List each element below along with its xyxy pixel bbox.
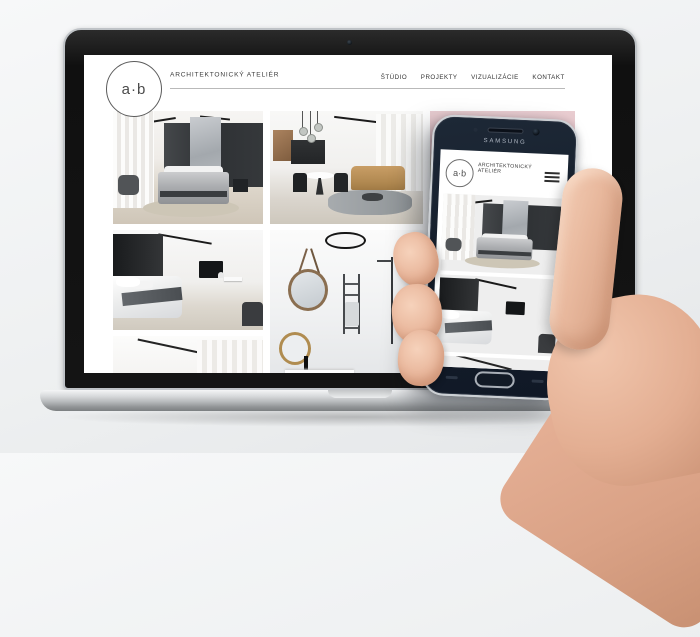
gallery-image-bedroom-grey[interactable] [113,111,263,224]
track-light-line [476,278,518,289]
site-logo[interactable]: a·b [106,61,162,117]
mobile-site-logo[interactable]: a·b [445,159,474,188]
wood-art-panel [273,130,293,161]
basin-shape [285,370,354,374]
pillows-shape [441,311,460,320]
gallery-image-bathroom[interactable] [270,230,423,373]
laptop-base-notch [328,390,392,398]
round-mirror-shape [288,269,328,311]
lamp-shape [218,272,224,278]
ceiling-lamp-shape [325,232,366,250]
hamburger-bar [544,180,559,183]
chair-shape [242,302,263,326]
faucet-shape [304,356,309,370]
main-nav: ŠTÚDIO PROJEKTY VIZUALIZÁCIE KONTAKT [381,74,565,81]
armchair-shape [445,237,462,251]
mobile-brand-name: ARCHITEKTONICKÝ ATELIÉR [478,162,532,176]
shower-glass-edge [391,257,393,344]
armchair-shape [118,175,139,194]
pillows-shape [116,277,140,287]
shower-arm-shape [377,260,392,262]
phone-camera-icon [532,128,539,135]
site-logo-text: a·b [122,81,147,98]
hamburger-bar [545,176,560,179]
nightstand-shape [233,179,248,193]
pendant-light [317,111,318,125]
nav-item-kontakt[interactable]: KONTAKT [533,74,565,81]
dining-chair-shape [293,173,307,192]
pendant-light [302,111,303,129]
throw-blanket-shape [160,191,228,197]
nav-item-studio[interactable]: ŠTÚDIO [381,74,407,81]
curtain-shape [441,193,476,261]
phone-sensor-icon [473,128,477,132]
bed-shape [158,172,229,204]
brand-name: ARCHITEKTONICKÝ ATELIÉR [170,71,279,78]
kitchen-units-shape [291,140,325,164]
shelf-shape [224,277,242,281]
header-divider [170,88,565,89]
nav-item-projekty[interactable]: PROJEKTY [421,74,458,81]
track-light-line [456,355,511,370]
phone-speaker [487,127,523,134]
tv-shape [506,301,525,315]
pendant-light [310,111,311,136]
mockup-scene: a·b ARCHITEKTONICKÝ ATELIÉR ŠTÚDIO PROJE… [0,0,700,453]
phone: SAMSUNG a·b ARCHITEKTONICKÝ ATELIÉR [421,114,579,401]
track-light-line [158,233,212,244]
mobile-gallery-image-bedroom-grey[interactable] [440,193,561,275]
mobile-gallery-image-white-room[interactable] [435,355,554,371]
hamburger-bar [545,172,560,175]
fixture-shape [399,350,420,371]
mobile-site-logo-text: a·b [453,168,466,179]
laptop-base [40,390,680,411]
mobile-gallery [435,193,561,371]
home-button [474,371,515,389]
nav-item-vizualizacie[interactable]: VIZUALIZÁCIE [471,74,519,81]
coffee-table-shape [362,193,383,201]
gallery-image-bedroom-white[interactable] [113,230,263,330]
bed-shape [476,237,532,261]
curtain-shape [197,340,263,373]
mustard-sofa-shape [351,166,405,190]
capacitive-key-right [532,379,544,383]
phone-brand-label: SAMSUNG [462,136,547,146]
chair-shape [538,334,555,353]
webcam-icon [347,40,352,45]
phone-screen: a·b ARCHITEKTONICKÝ ATELIÉR [431,149,568,371]
gallery-image-living-room[interactable] [270,111,423,224]
towel-shape [345,302,359,326]
table-leg-shape [316,178,324,195]
capacitive-key-left [446,376,458,380]
hamburger-menu-icon[interactable] [544,170,560,185]
dining-chair-shape [334,173,348,192]
gallery-image-white-room[interactable] [113,336,263,373]
mobile-gallery-image-bedroom-white[interactable] [437,274,558,356]
